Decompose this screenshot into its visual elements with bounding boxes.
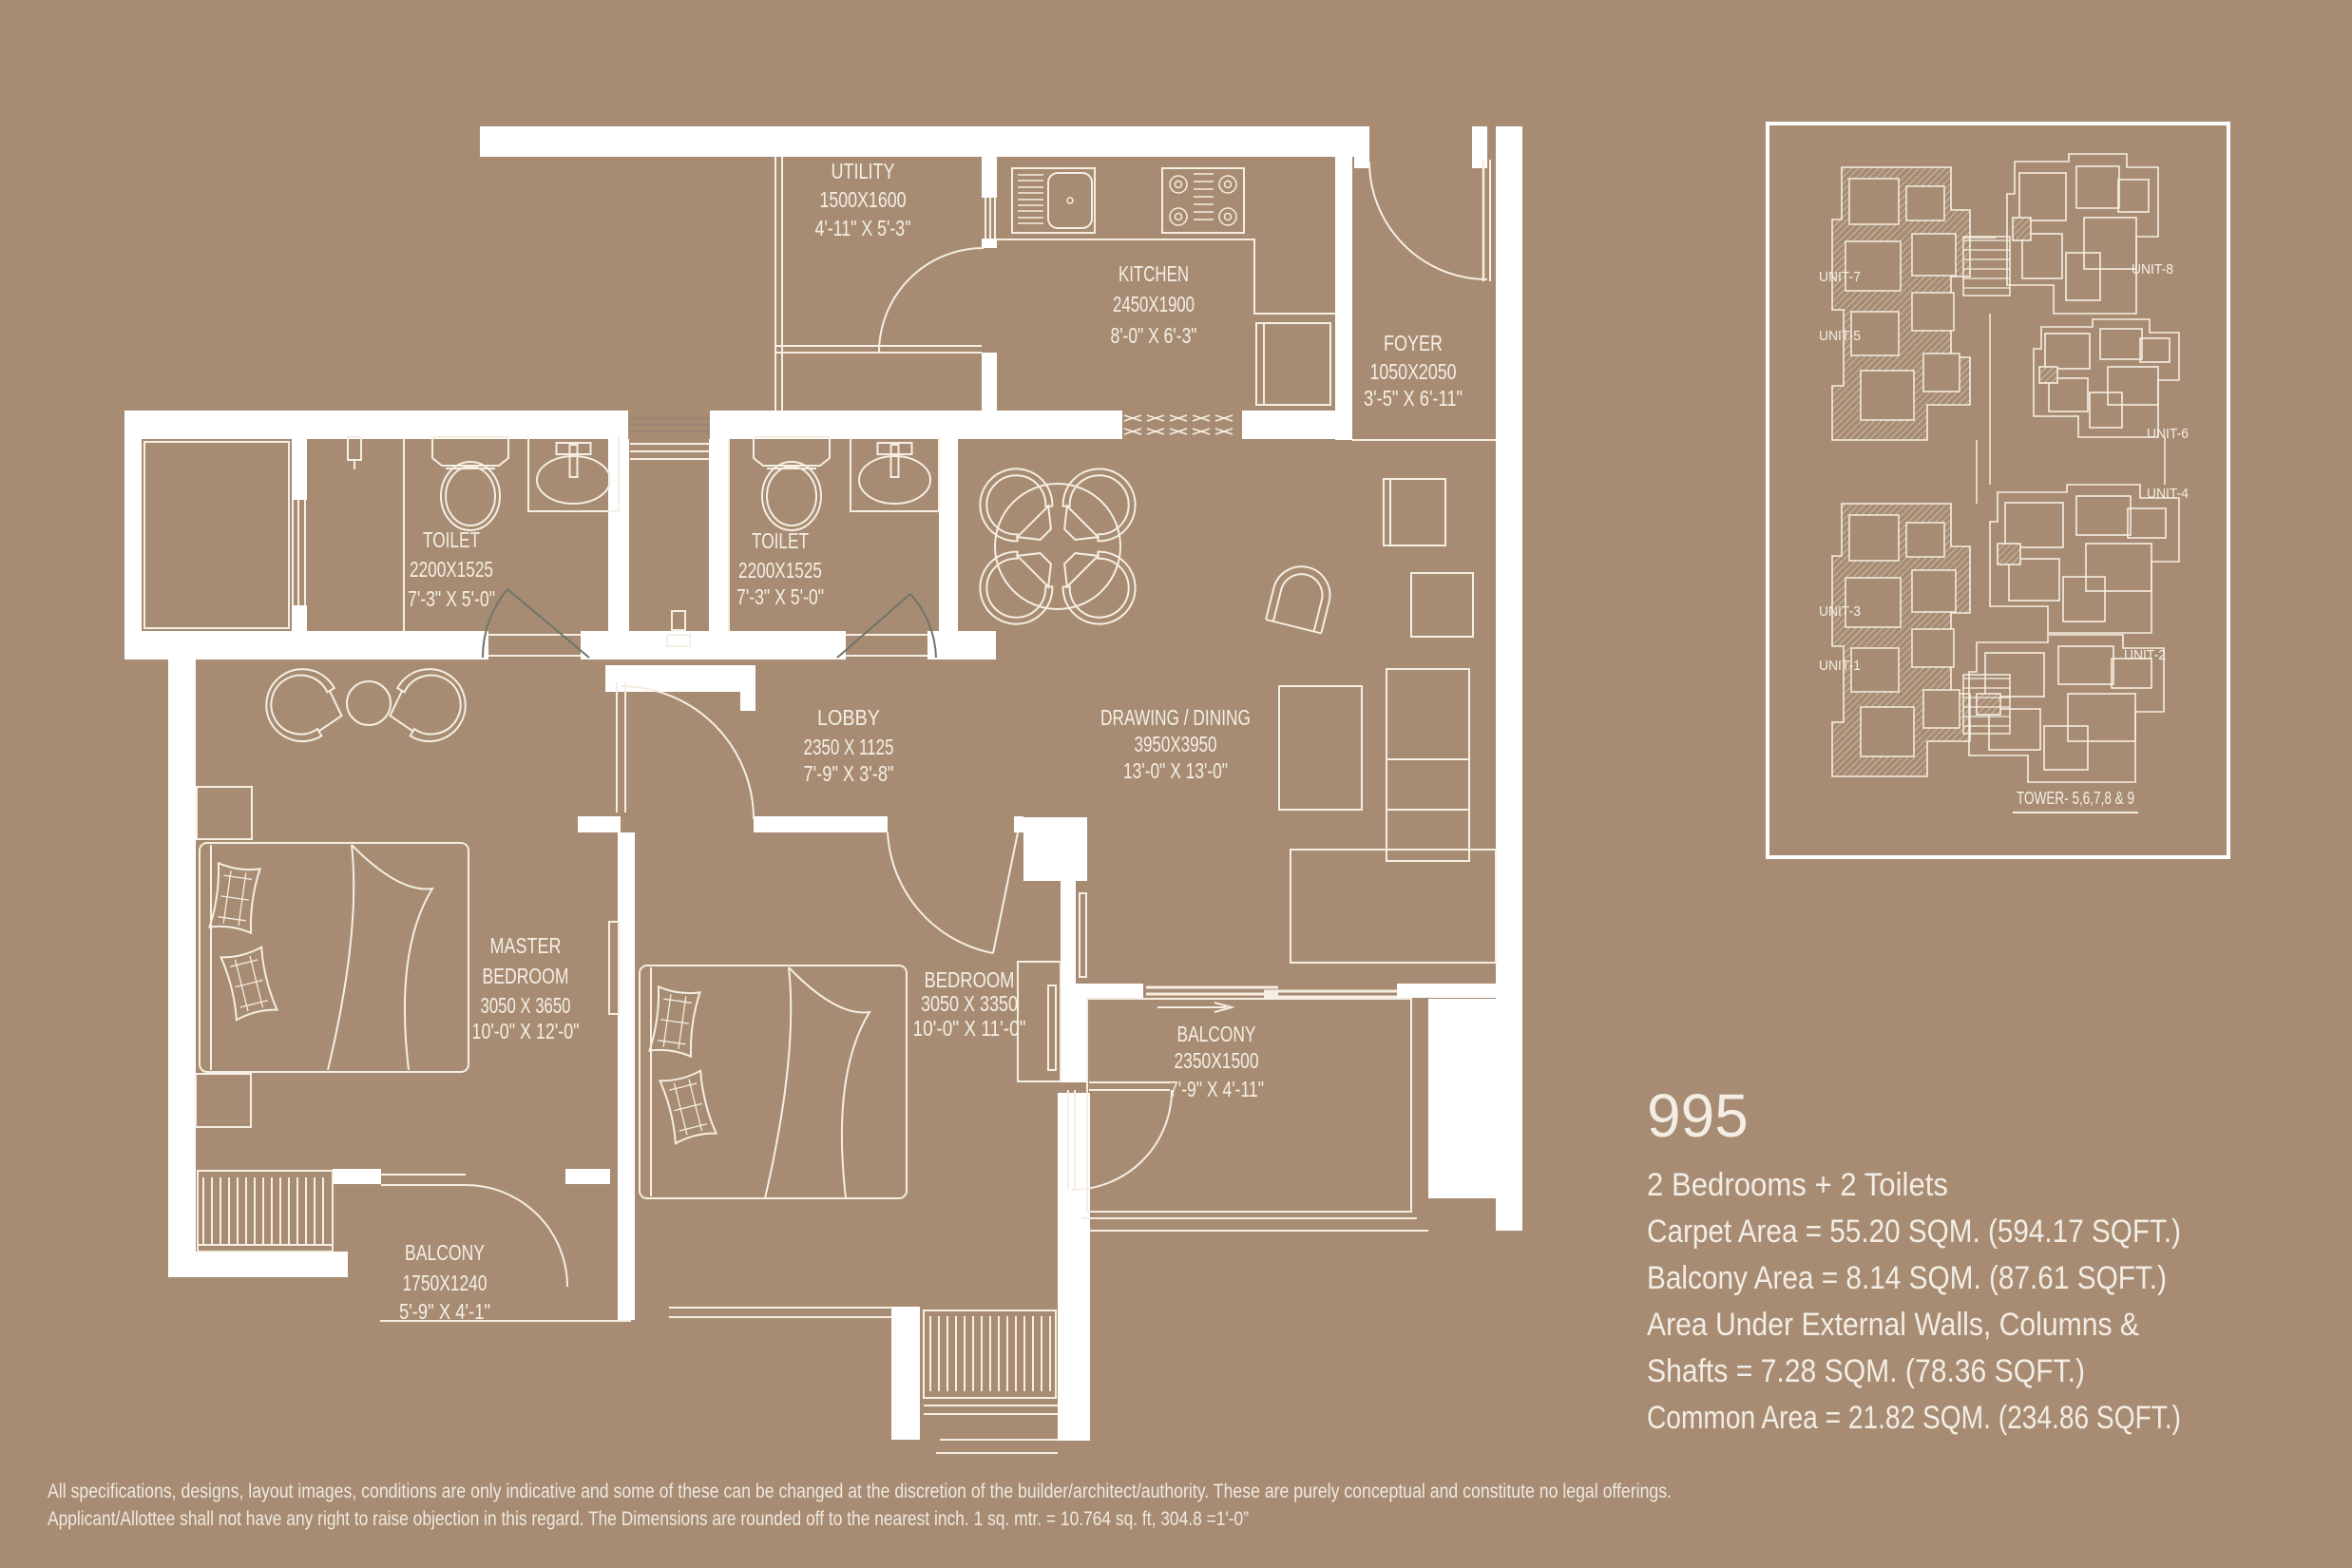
svg-text:2200X1525: 2200X1525 bbox=[738, 558, 822, 583]
svg-text:7'-9" X 4'-11": 7'-9" X 4'-11" bbox=[1169, 1077, 1264, 1101]
svg-text:Shafts = 7.28 SQM. (78.36 SQFT: Shafts = 7.28 SQM. (78.36 SQFT.) bbox=[1647, 1353, 2085, 1389]
svg-text:2450X1900: 2450X1900 bbox=[1113, 292, 1195, 316]
svg-text:BEDROOM: BEDROOM bbox=[483, 964, 569, 988]
svg-text:7'-9" X 3'-8": 7'-9" X 3'-8" bbox=[804, 761, 894, 786]
svg-text:KITCHEN: KITCHEN bbox=[1119, 261, 1189, 286]
svg-text:2 Bedrooms + 2 Toilets: 2 Bedrooms + 2 Toilets bbox=[1647, 1167, 1948, 1203]
svg-text:UNIT-7: UNIT-7 bbox=[1819, 269, 1861, 285]
svg-text:TOILET: TOILET bbox=[423, 527, 480, 552]
svg-text:UNIT-2: UNIT-2 bbox=[2124, 647, 2166, 663]
svg-text:UNIT-8: UNIT-8 bbox=[2132, 261, 2173, 277]
svg-text:Carpet Area = 55.20 SQM. (594.: Carpet Area = 55.20 SQM. (594.17 SQFT.) bbox=[1647, 1214, 2181, 1250]
svg-text:5'-9" X 4'-1": 5'-9" X 4'-1" bbox=[399, 1299, 490, 1324]
svg-text:3050 X 3650: 3050 X 3650 bbox=[481, 993, 571, 1018]
svg-text:Area Under External Walls, Col: Area Under External Walls, Columns & bbox=[1647, 1307, 2139, 1343]
svg-text:UNIT-3: UNIT-3 bbox=[1819, 603, 1861, 620]
svg-text:UNIT-4: UNIT-4 bbox=[2147, 486, 2189, 502]
svg-text:Common Area = 21.82 SQM. (234.: Common Area = 21.82 SQM. (234.86 SQFT.) bbox=[1647, 1400, 2181, 1436]
svg-text:4'-11" X 5'-3": 4'-11" X 5'-3" bbox=[815, 216, 911, 240]
svg-text:3950X3950: 3950X3950 bbox=[1135, 732, 1217, 756]
svg-text:BALCONY: BALCONY bbox=[405, 1240, 485, 1265]
svg-text:All specifications, designs, l: All specifications, designs, layout imag… bbox=[48, 1481, 1672, 1502]
svg-text:13'-0" X 13'-0": 13'-0" X 13'-0" bbox=[1123, 758, 1228, 783]
svg-text:1500X1600: 1500X1600 bbox=[820, 187, 907, 212]
svg-text:UTILITY: UTILITY bbox=[832, 159, 895, 183]
svg-text:3'-5" X 6'-11": 3'-5" X 6'-11" bbox=[1364, 386, 1463, 411]
svg-text:TOILET: TOILET bbox=[752, 528, 809, 553]
svg-text:10'-0" X 12'-0": 10'-0" X 12'-0" bbox=[472, 1019, 580, 1043]
svg-text:2200X1525: 2200X1525 bbox=[410, 557, 493, 582]
svg-text:3050 X 3350: 3050 X 3350 bbox=[921, 991, 1018, 1016]
svg-text:10'-0" X 11'-0": 10'-0" X 11'-0" bbox=[913, 1016, 1026, 1041]
svg-text:7'-3" X 5'-0": 7'-3" X 5'-0" bbox=[408, 586, 495, 611]
svg-text:BALCONY: BALCONY bbox=[1177, 1022, 1256, 1046]
svg-text:995: 995 bbox=[1647, 1081, 1749, 1150]
svg-text:1050X2050: 1050X2050 bbox=[1370, 359, 1457, 384]
svg-text:8'-0" X 6'-3": 8'-0" X 6'-3" bbox=[1111, 323, 1197, 348]
svg-text:DRAWING / DINING: DRAWING / DINING bbox=[1100, 705, 1251, 730]
svg-text:2350X1500: 2350X1500 bbox=[1175, 1048, 1259, 1073]
svg-text:7'-3" X 5'-0": 7'-3" X 5'-0" bbox=[736, 584, 824, 609]
svg-text:UNIT-6: UNIT-6 bbox=[2147, 426, 2189, 442]
svg-text:BEDROOM: BEDROOM bbox=[925, 967, 1015, 992]
svg-text:MASTER: MASTER bbox=[490, 933, 562, 958]
svg-text:TOWER- 5,6,7,8 & 9: TOWER- 5,6,7,8 & 9 bbox=[2017, 789, 2134, 808]
svg-text:UNIT-5: UNIT-5 bbox=[1819, 328, 1861, 344]
svg-text:Balcony Area = 8.14 SQM. (87.6: Balcony Area = 8.14 SQM. (87.61 SQFT.) bbox=[1647, 1260, 2167, 1296]
svg-text:Applicant/Allottee shall not h: Applicant/Allottee shall not have any ri… bbox=[48, 1508, 1249, 1530]
svg-text:LOBBY: LOBBY bbox=[817, 705, 880, 730]
svg-text:FOYER: FOYER bbox=[1384, 331, 1443, 355]
svg-text:2350 X 1125: 2350 X 1125 bbox=[804, 735, 894, 759]
svg-text:UNIT-1: UNIT-1 bbox=[1819, 658, 1861, 674]
svg-text:1750X1240: 1750X1240 bbox=[403, 1271, 488, 1295]
